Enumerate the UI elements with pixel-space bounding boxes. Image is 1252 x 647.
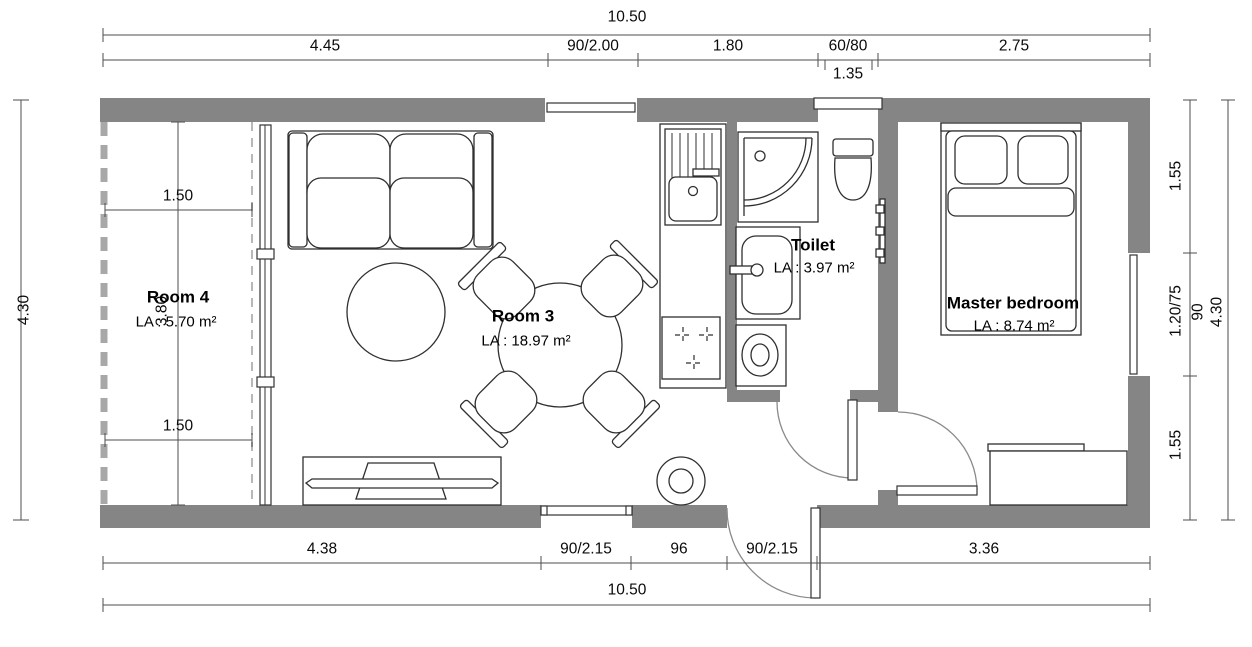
dim-right-seg-3: 1.55 [1168, 430, 1184, 460]
round-rug [347, 263, 445, 361]
kitchen-counter [660, 124, 726, 388]
wc-toilet [833, 139, 873, 200]
kitchen-sink [665, 129, 721, 225]
room3-title: Room 3 [492, 308, 554, 325]
doors [727, 400, 977, 598]
shower [738, 132, 818, 222]
room4-area: LA : 5.70 m² [136, 315, 217, 330]
dim-bottom-seg-1: 4.38 [307, 541, 337, 557]
dim-bottom-seg-4: 90/2.15 [746, 541, 798, 557]
dim-top-seg-2: 90/2.00 [567, 38, 619, 54]
radiator-icon [876, 199, 885, 263]
dresser [988, 444, 1127, 505]
toilet-title: Toilet [791, 237, 835, 254]
dim-right-seg-1: 1.55 [1168, 161, 1184, 191]
dim-top-overall: 10.50 [608, 9, 647, 25]
tv-stand [303, 457, 501, 505]
dim-right-window: 90 [1190, 303, 1206, 320]
window-top-small [814, 98, 882, 109]
glazed-partition [257, 125, 274, 505]
toilet-area: LA : 3.97 m² [774, 261, 855, 276]
washing-machine [736, 325, 786, 386]
stove [662, 317, 720, 379]
dim-top-seg-5: 2.75 [999, 38, 1029, 54]
dim-right-overall: 4.30 [1209, 297, 1225, 327]
dim-top-sub: 1.35 [833, 66, 863, 82]
dim-bottom-seg-3: 96 [670, 541, 687, 557]
dim-top-seg-3: 1.80 [713, 38, 743, 54]
master-bedroom-area: LA : 8.74 m² [974, 319, 1055, 334]
master-bedroom-title: Master bedroom [947, 295, 1079, 312]
window-right [1130, 255, 1137, 374]
round-stool [657, 457, 705, 505]
dim-left-overall: 4.30 [16, 295, 32, 325]
dim-top-seg-4: 60/80 [829, 38, 868, 54]
dim-bottom-seg-2: 90/2.15 [560, 541, 612, 557]
room4-title: Room 4 [147, 289, 209, 306]
dim-right-seg-2: 1.20/75 [1168, 285, 1184, 337]
window-bottom [541, 506, 632, 515]
dim-top-seg-1: 4.45 [310, 38, 340, 54]
window-top-large [547, 103, 635, 112]
dim-bottom-overall: 10.50 [608, 582, 647, 598]
bedroom-door [897, 412, 977, 495]
toilet-door [777, 400, 857, 480]
dim-bottom-seg-5: 3.36 [969, 541, 999, 557]
dim-room4-width-top: 1.50 [163, 188, 193, 204]
floor-plan: 10.50 4.45 90/2.00 1.80 60/80 2.75 1.35 … [0, 0, 1252, 647]
sofa [288, 131, 493, 249]
room3-area: LA : 18.97 m² [481, 334, 570, 349]
dim-room4-width-bottom: 1.50 [163, 418, 193, 434]
